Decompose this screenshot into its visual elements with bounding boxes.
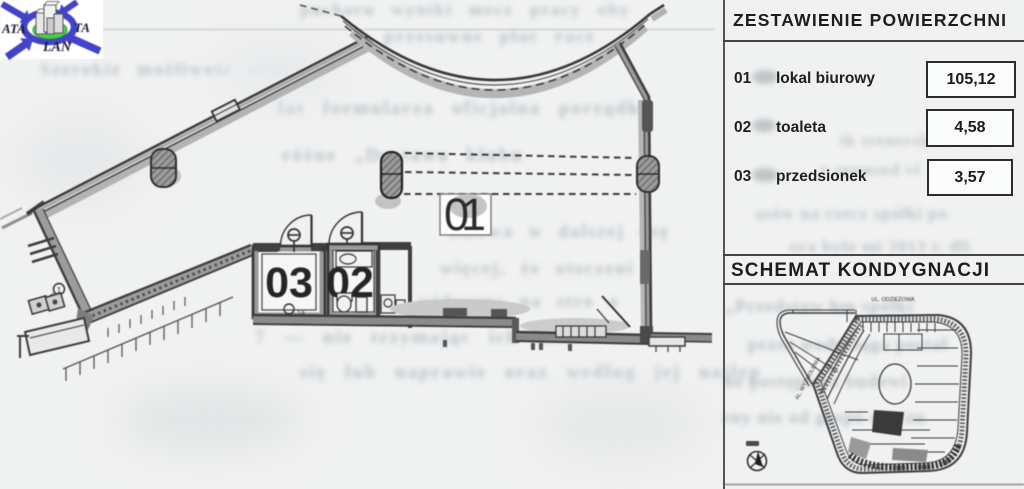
- svg-text:TA: TA: [74, 20, 90, 35]
- svg-text:UL. ODZIEŻOWA: UL. ODZIEŻOWA: [871, 296, 915, 303]
- svg-text:03: 03: [265, 259, 313, 307]
- svg-text:ATA: ATA: [1, 21, 26, 36]
- svg-text:LAN: LAN: [42, 40, 72, 55]
- svg-text:01: 01: [444, 189, 486, 240]
